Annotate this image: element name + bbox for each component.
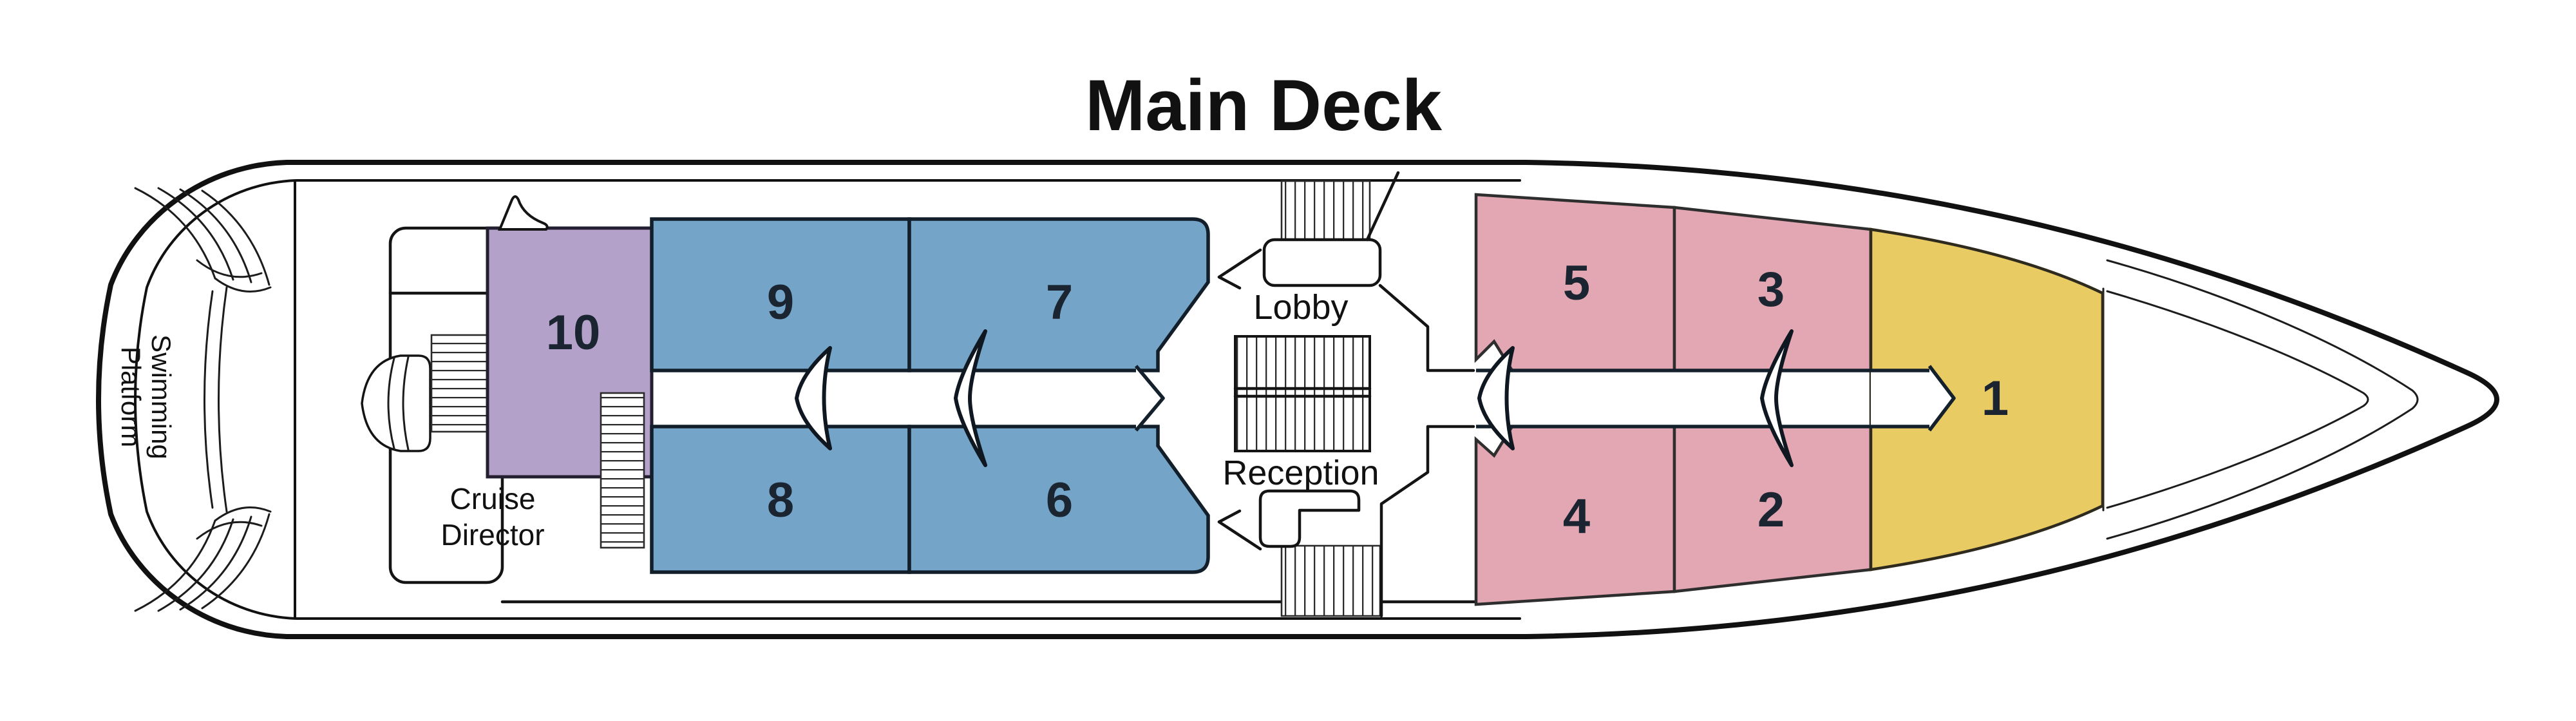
cabin-5-number: 5	[1563, 256, 1590, 311]
stairway-lower	[1282, 546, 1380, 616]
svg-text:Cruise: Cruise	[450, 482, 536, 515]
swimming-platform-label: Swimming Platform	[116, 334, 176, 459]
stairs-cruise-director	[431, 335, 488, 432]
cabin-1-number: 1	[1982, 371, 2009, 426]
deck-plan: Main Deck 10 9 7 8 6 5 3 4 2 1 Lobby Rec…	[0, 0, 2576, 721]
deck-title: Main Deck	[1085, 65, 1443, 146]
cabin-6-number: 6	[1046, 473, 1073, 528]
svg-text:Swimming: Swimming	[146, 334, 176, 459]
stairway-upper	[1264, 181, 1380, 285]
cabin-4-number: 4	[1563, 489, 1590, 544]
central-staircase	[1235, 336, 1370, 451]
cabin-7-number: 7	[1046, 275, 1073, 330]
stairs-midship	[601, 393, 644, 548]
stairway-upper-landing	[1264, 240, 1380, 285]
cabin-8-number: 8	[767, 473, 794, 528]
cabin-3-number: 3	[1757, 262, 1785, 317]
svg-text:Director: Director	[440, 518, 544, 552]
svg-text:Platform: Platform	[116, 347, 146, 447]
lobby-label: Lobby	[1253, 288, 1348, 327]
reception-label: Reception	[1222, 454, 1379, 492]
cabin-9-number: 9	[767, 275, 794, 330]
cabin-10-number: 10	[546, 305, 601, 360]
cabin-2-number: 2	[1757, 483, 1785, 537]
